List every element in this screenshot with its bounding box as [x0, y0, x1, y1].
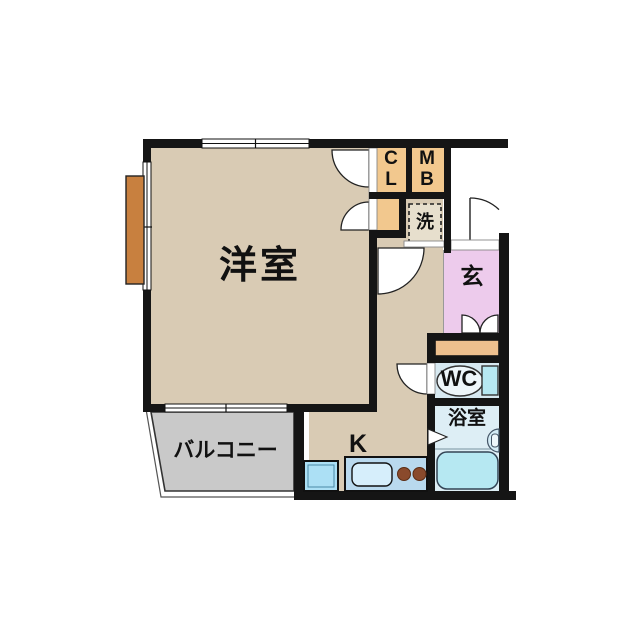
meter-box-label: MB	[416, 149, 438, 190]
wall-bottom	[294, 491, 516, 500]
wc-label: WC	[433, 367, 485, 391]
front-door	[470, 198, 499, 240]
wall-left-upper	[143, 139, 151, 162]
entrance-threshold	[451, 240, 499, 250]
floor-plan-page: 洋室 バルコニー K CL MB 洗 玄 WC 浴室	[0, 0, 640, 640]
wall-wc-left-lower	[427, 394, 435, 500]
wall-wc-left-upper	[427, 333, 435, 363]
kitchen-sink	[352, 463, 392, 486]
wall-room-right	[369, 230, 377, 412]
pipe-space-floor	[377, 199, 399, 230]
wall-cl-mb-bottom	[369, 192, 451, 199]
wall-laundry-right	[444, 199, 451, 253]
front-door-arc	[470, 198, 499, 210]
window-shutter-panel	[126, 176, 144, 284]
stove-burner-right	[413, 468, 426, 481]
floor-plan-drawing	[0, 0, 640, 640]
wall-entrance-bottom	[435, 333, 509, 340]
room-doorway-opening	[369, 148, 377, 230]
wall-balcony-right	[294, 404, 304, 500]
top-window	[202, 139, 309, 148]
washbasin-faucet	[492, 434, 499, 447]
stove-burner-left	[398, 468, 411, 481]
balcony-label: バルコニー	[158, 440, 293, 463]
laundry-label: 洗	[410, 213, 440, 232]
bathtub	[437, 452, 498, 489]
balcony-sliding-window	[165, 404, 287, 412]
closet-label: CL	[380, 149, 402, 190]
hall-doorway-opening	[404, 241, 444, 247]
kitchen-label: K	[342, 431, 374, 458]
wall-right	[499, 233, 509, 500]
entrance-label: 玄	[457, 264, 487, 289]
wall-room-bottom-left	[143, 404, 165, 412]
western-room-label: 洋室	[190, 246, 330, 287]
wall-wc-bath-divider	[427, 398, 509, 406]
entrance-porch-strip	[435, 340, 499, 356]
wall-mb-right	[444, 139, 451, 199]
wall-wc-top	[435, 356, 509, 363]
wall-pipe-space-bottom	[369, 230, 406, 238]
wall-left-lower	[143, 290, 151, 412]
bathroom-label: 浴室	[437, 409, 497, 430]
wall-top	[143, 139, 508, 148]
wall-cl-mb-divider	[406, 148, 412, 192]
